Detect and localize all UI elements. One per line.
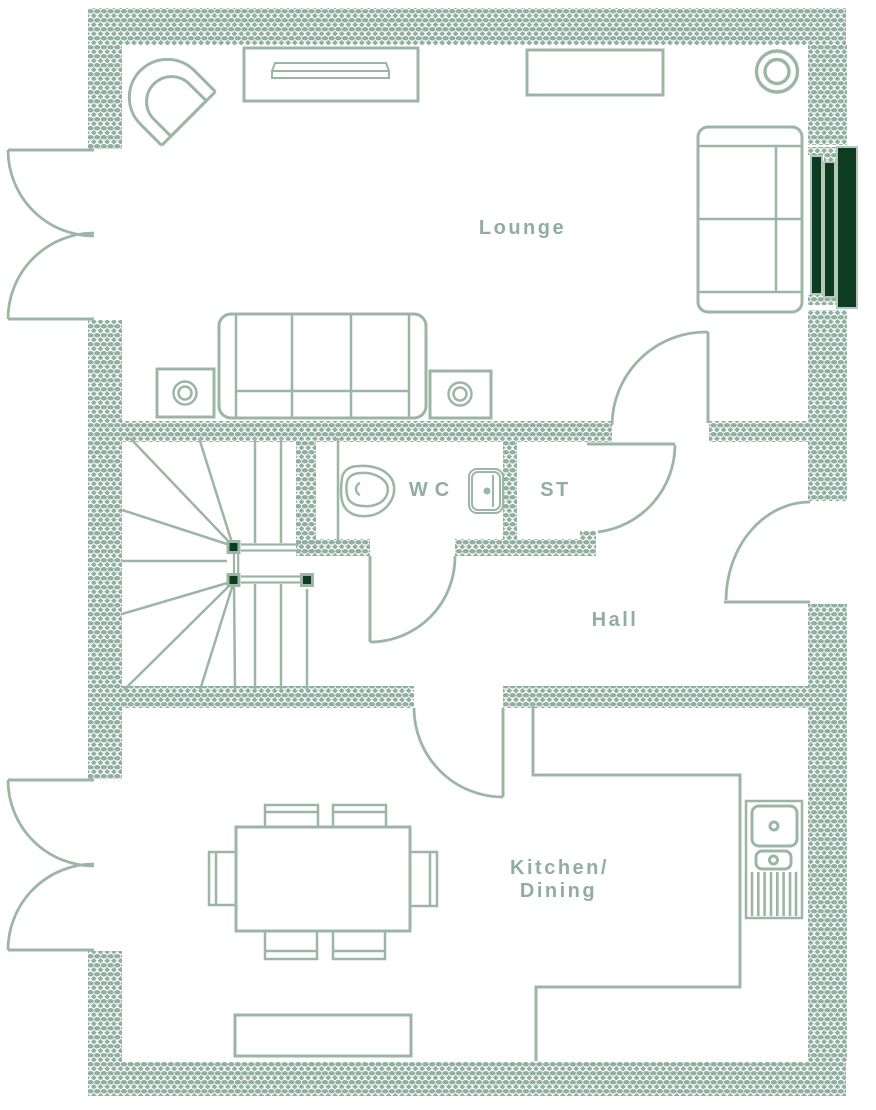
svg-text:Hall: Hall — [592, 609, 639, 631]
svg-text:Dining: Dining — [520, 880, 597, 902]
svg-text:ST: ST — [540, 479, 571, 501]
svg-text:Kitchen/: Kitchen/ — [510, 857, 609, 879]
svg-text:Lounge: Lounge — [479, 217, 566, 239]
svg-text:WC: WC — [409, 479, 456, 501]
